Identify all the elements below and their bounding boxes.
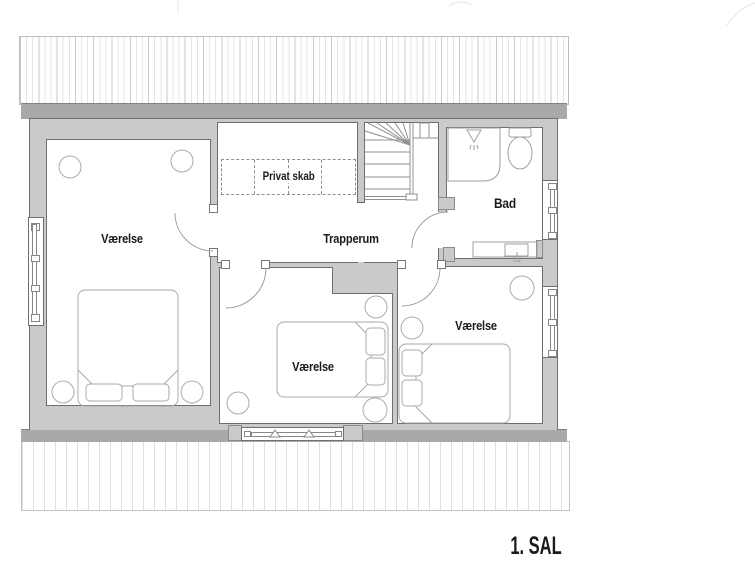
door-opening-bathroom [437, 212, 448, 248]
door-post [209, 204, 218, 213]
room-label-bathroom: Bad [471, 194, 539, 212]
floor-plan-canvas: Privat skab [0, 0, 755, 566]
door-post [209, 248, 218, 257]
window-bedroom-right-east [542, 286, 558, 358]
floor-bedroom-left [46, 139, 211, 406]
room-label-bedroom-left: Værelse [71, 229, 173, 247]
door-post [397, 260, 406, 269]
floor-title: 1. SAL [483, 532, 589, 560]
door-post [261, 260, 270, 269]
crop-artifacts [178, 0, 755, 26]
wall-pier-bathroom-corner [536, 240, 543, 258]
closet-private: Privat skab [221, 159, 356, 195]
window-south-wall [241, 427, 344, 441]
room-label-stairwell: Trapperum [300, 229, 402, 247]
window-bathroom-east [542, 180, 558, 240]
wall-pier-window-right [343, 425, 363, 441]
door-post [221, 260, 230, 269]
closet-label-wrap: Privat skab [222, 160, 355, 194]
floor-bedroom-right [397, 266, 543, 424]
room-label-bedroom-right: Værelse [425, 316, 527, 334]
eaves-band-top [21, 103, 567, 119]
door-opening-bedroom-left [209, 213, 219, 249]
wall-pier-window-left [228, 425, 242, 441]
wall-jog-bathroom [438, 197, 455, 210]
door-post [437, 260, 446, 269]
window-west-wall [28, 217, 44, 326]
closet-label: Privat skab [260, 171, 317, 183]
wall-bulkhead-middle-room [332, 267, 393, 294]
roof-hatch-bottom [21, 441, 570, 511]
floor-bathroom [446, 127, 543, 259]
room-label-bedroom-middle: Værelse [262, 357, 364, 375]
roof-hatch-top [19, 36, 569, 105]
